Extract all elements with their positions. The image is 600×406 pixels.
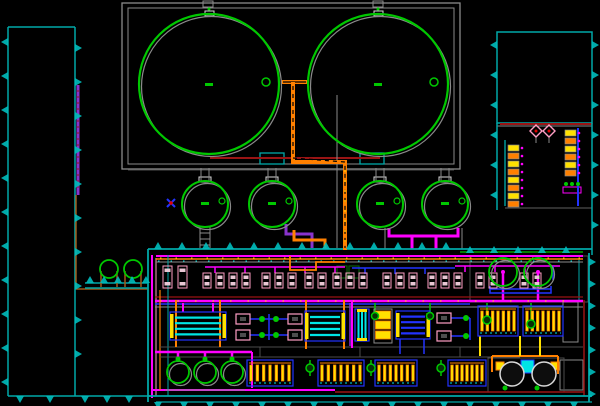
pump-box-band: [385, 276, 390, 280]
pump-box-band: [398, 282, 403, 286]
comb-hx-l1-fin: [281, 365, 284, 381]
pump-box-band: [277, 282, 282, 286]
comb-hx-l3-fin: [383, 365, 386, 381]
comb-hx-l3-fin: [406, 365, 409, 381]
comb-hx-l4-fin: [481, 365, 484, 381]
yard-rack-right-box: [565, 154, 576, 160]
yard-rack-left-box: [508, 201, 519, 207]
plate-hx-c-end: [342, 313, 346, 339]
yard-rack-left-dot: [521, 171, 524, 174]
yard-rack-left-dot: [521, 147, 524, 150]
big-cap-dot-2: [377, 8, 380, 11]
comb-hx-l1-fin: [275, 365, 278, 381]
pink-equipment-core: [441, 334, 447, 338]
comb-hx-l1-fin: [262, 365, 265, 381]
comb-hx-h1-fin: [507, 311, 510, 331]
comb-hx-h2-fin: [542, 311, 545, 331]
comb-hx-l2-fin: [321, 365, 324, 381]
valve-tree-1: [372, 313, 379, 320]
black-pump-1: [500, 362, 524, 386]
yard-rack-right-dot: [578, 164, 581, 167]
big-tank-center-dash-1: [205, 83, 213, 86]
comb-hx-l3-fin: [378, 365, 381, 381]
comb-hx-h2-fin: [558, 311, 561, 331]
pump-box-band: [290, 282, 295, 286]
comb-hx-l2-fin: [333, 365, 336, 381]
pump-box-band: [277, 276, 282, 280]
comb-hx-l1-fin: [256, 365, 259, 381]
pump-box-band: [335, 282, 340, 286]
pump-box-band: [180, 269, 186, 273]
pump-box-band: [398, 276, 403, 280]
comb-hx-l2-fin: [352, 365, 355, 381]
yard-rack-left-dot: [521, 163, 524, 166]
comb-hx-l1-fin: [288, 365, 291, 381]
pump-box-band: [411, 276, 416, 280]
pump-box-band: [264, 282, 269, 286]
comb-hx-l3-fin: [412, 365, 415, 381]
valve-tree-2: [427, 313, 434, 320]
lower-tree-1: [306, 364, 314, 372]
comb-hx-h1-fin: [491, 311, 494, 331]
plate-hx-a-end: [170, 314, 174, 338]
yard-rack-left-box: [508, 193, 519, 199]
ball-valve-b2: [273, 316, 279, 322]
comb-hx-l2-fin: [327, 365, 330, 381]
comb-hx-l2-fin: [346, 365, 349, 381]
comb-hx-l1-fin: [250, 365, 253, 381]
yard-rack-right-box: [565, 130, 576, 136]
plate-hx-c-end: [305, 313, 309, 339]
ball-valve-b4: [273, 332, 279, 338]
ball-valve-b1: [259, 316, 265, 322]
comb-hx-h1-fin: [497, 311, 500, 331]
pump-box-band: [535, 276, 540, 280]
plate-hx-d-end: [357, 338, 367, 341]
cad-canvas[interactable]: [0, 0, 600, 406]
comb-hx-h1-fin: [513, 311, 516, 331]
yard-rack-right-dot: [578, 156, 581, 159]
yard-rack-left-box: [508, 161, 519, 167]
clarifier-2-hub: [536, 270, 540, 274]
pump-box-band: [456, 282, 461, 286]
stack-unit-e-box: [376, 331, 391, 339]
big-cap-dot-1: [208, 8, 211, 11]
lower-tree-2: [367, 364, 375, 372]
comb-hx-l4-fin: [451, 365, 454, 381]
comb-hx-l3-fin: [389, 365, 392, 381]
ball-valve-g1: [463, 315, 469, 321]
pump-box-band: [522, 282, 527, 286]
comb-hx-l3-fin: [400, 365, 403, 381]
pump-box-band: [307, 276, 312, 280]
valve-diamond-2-dot: [548, 130, 551, 133]
comb-hx-l1-fin: [269, 365, 272, 381]
comb-hx-l4-fin: [461, 365, 464, 381]
black-pump-2: [532, 362, 556, 386]
pump-box-band: [218, 276, 223, 280]
yard-rack-left-box: [508, 177, 519, 183]
yard-rack-left-dot: [521, 155, 524, 158]
mid-tank-center-dash-2: [268, 202, 276, 205]
xmark-dot: [169, 201, 173, 205]
pink-equipment-core: [240, 317, 246, 321]
pump-box-band: [231, 282, 236, 286]
comb-hx-h2-fin: [552, 311, 555, 331]
comb-hx-l4-fin: [476, 365, 479, 381]
pump-box-band: [478, 276, 483, 280]
pump-box-band: [348, 282, 353, 286]
pump-box-band: [244, 276, 249, 280]
big-tank-center-dash-2: [374, 83, 382, 86]
stack-unit-e-box: [376, 321, 391, 329]
yard-dot-3: [576, 182, 580, 186]
ball-valve-b3: [259, 332, 265, 338]
comb-hx-l4-fin: [456, 365, 459, 381]
pump-box-band: [361, 282, 366, 286]
yard-rack-left-box: [508, 145, 519, 151]
cad-drawing-viewport: [0, 0, 600, 406]
pump-box-band: [218, 282, 223, 286]
pink-equipment-core: [441, 316, 447, 320]
pump-box-band: [348, 276, 353, 280]
pg-green-dot-1: [503, 386, 508, 391]
pump-box-band: [430, 276, 435, 280]
pink-equipment-core: [240, 333, 246, 337]
yard-rack-left-box: [508, 185, 519, 191]
pump-box-band: [478, 282, 483, 286]
pump-box-band: [335, 276, 340, 280]
comb-hx-h2-fin: [547, 311, 550, 331]
pg-green-dot-2: [535, 386, 540, 391]
comb-hx-l4-fin: [466, 365, 469, 381]
pump-box-band: [264, 276, 269, 280]
pink-equipment-core: [292, 317, 298, 321]
pump-box-band: [430, 282, 435, 286]
pump-box-band: [385, 282, 390, 286]
comb-hx-l2-fin: [359, 365, 362, 381]
clarifier-1-hub: [501, 270, 505, 274]
valve-diamond-1-dot: [535, 130, 538, 133]
pump-box-band: [307, 282, 312, 286]
valve-tree-3: [483, 316, 491, 324]
mid-tank-center-dash-3: [376, 202, 384, 205]
pump-box-band: [205, 276, 210, 280]
comb-hx-h2-fin: [536, 311, 539, 331]
yard-rack-left-dot: [521, 179, 524, 182]
pump-box-band: [411, 282, 416, 286]
comb-hx-l3-fin: [395, 365, 398, 381]
pump-box-band: [443, 276, 448, 280]
ball-valve-g2: [463, 333, 469, 339]
pump-box-band: [456, 276, 461, 280]
yard-dot-2: [570, 182, 574, 186]
pump-box-band: [180, 282, 186, 286]
plate-hx-f-end: [396, 313, 400, 337]
lower-tree-3: [437, 364, 445, 372]
valve-tree-4: [527, 320, 535, 328]
comb-hx-h1-fin: [502, 311, 505, 331]
plate-hx-a-end: [223, 314, 227, 338]
yard-dot-1: [564, 182, 568, 186]
pump-box-band: [205, 282, 210, 286]
mid-tank-center-dash-1: [201, 202, 209, 205]
pump-box-band: [320, 282, 325, 286]
yard-rack-right-box: [565, 138, 576, 144]
pump-top-2: [203, 357, 208, 362]
pump-box-band: [320, 276, 325, 280]
pump-top-1: [176, 357, 181, 362]
pump-box-band: [443, 282, 448, 286]
yard-rack-left-dot: [521, 195, 524, 198]
pump-box-band: [165, 282, 171, 286]
comb-hx-l4-fin: [471, 365, 474, 381]
comb-hx-l2-fin: [340, 365, 343, 381]
pump-box-band: [165, 269, 171, 273]
yard-rack-left-dot: [521, 203, 524, 206]
yard-rack-right-box: [565, 162, 576, 168]
pump-box-band: [244, 282, 249, 286]
yard-rack-right-dot: [578, 132, 581, 135]
pump-box-band: [231, 276, 236, 280]
yard-rack-left-box: [508, 169, 519, 175]
yard-rack-left-box: [508, 153, 519, 159]
pump-box-band: [290, 276, 295, 280]
plate-hx-d-end: [357, 309, 367, 312]
pink-equipment-core: [292, 333, 298, 337]
yard-rack-left-dot: [521, 187, 524, 190]
yard-rack-right-dot: [578, 172, 581, 175]
yard-rack-right-box: [565, 146, 576, 152]
yard-rack-right-dot: [578, 140, 581, 143]
mid-tank-center-dash-4: [441, 202, 449, 205]
yard-rack-right-dot: [578, 148, 581, 151]
yard-rack-right-box: [565, 170, 576, 176]
pump-box-band: [361, 276, 366, 280]
pump-top-3: [230, 357, 235, 362]
